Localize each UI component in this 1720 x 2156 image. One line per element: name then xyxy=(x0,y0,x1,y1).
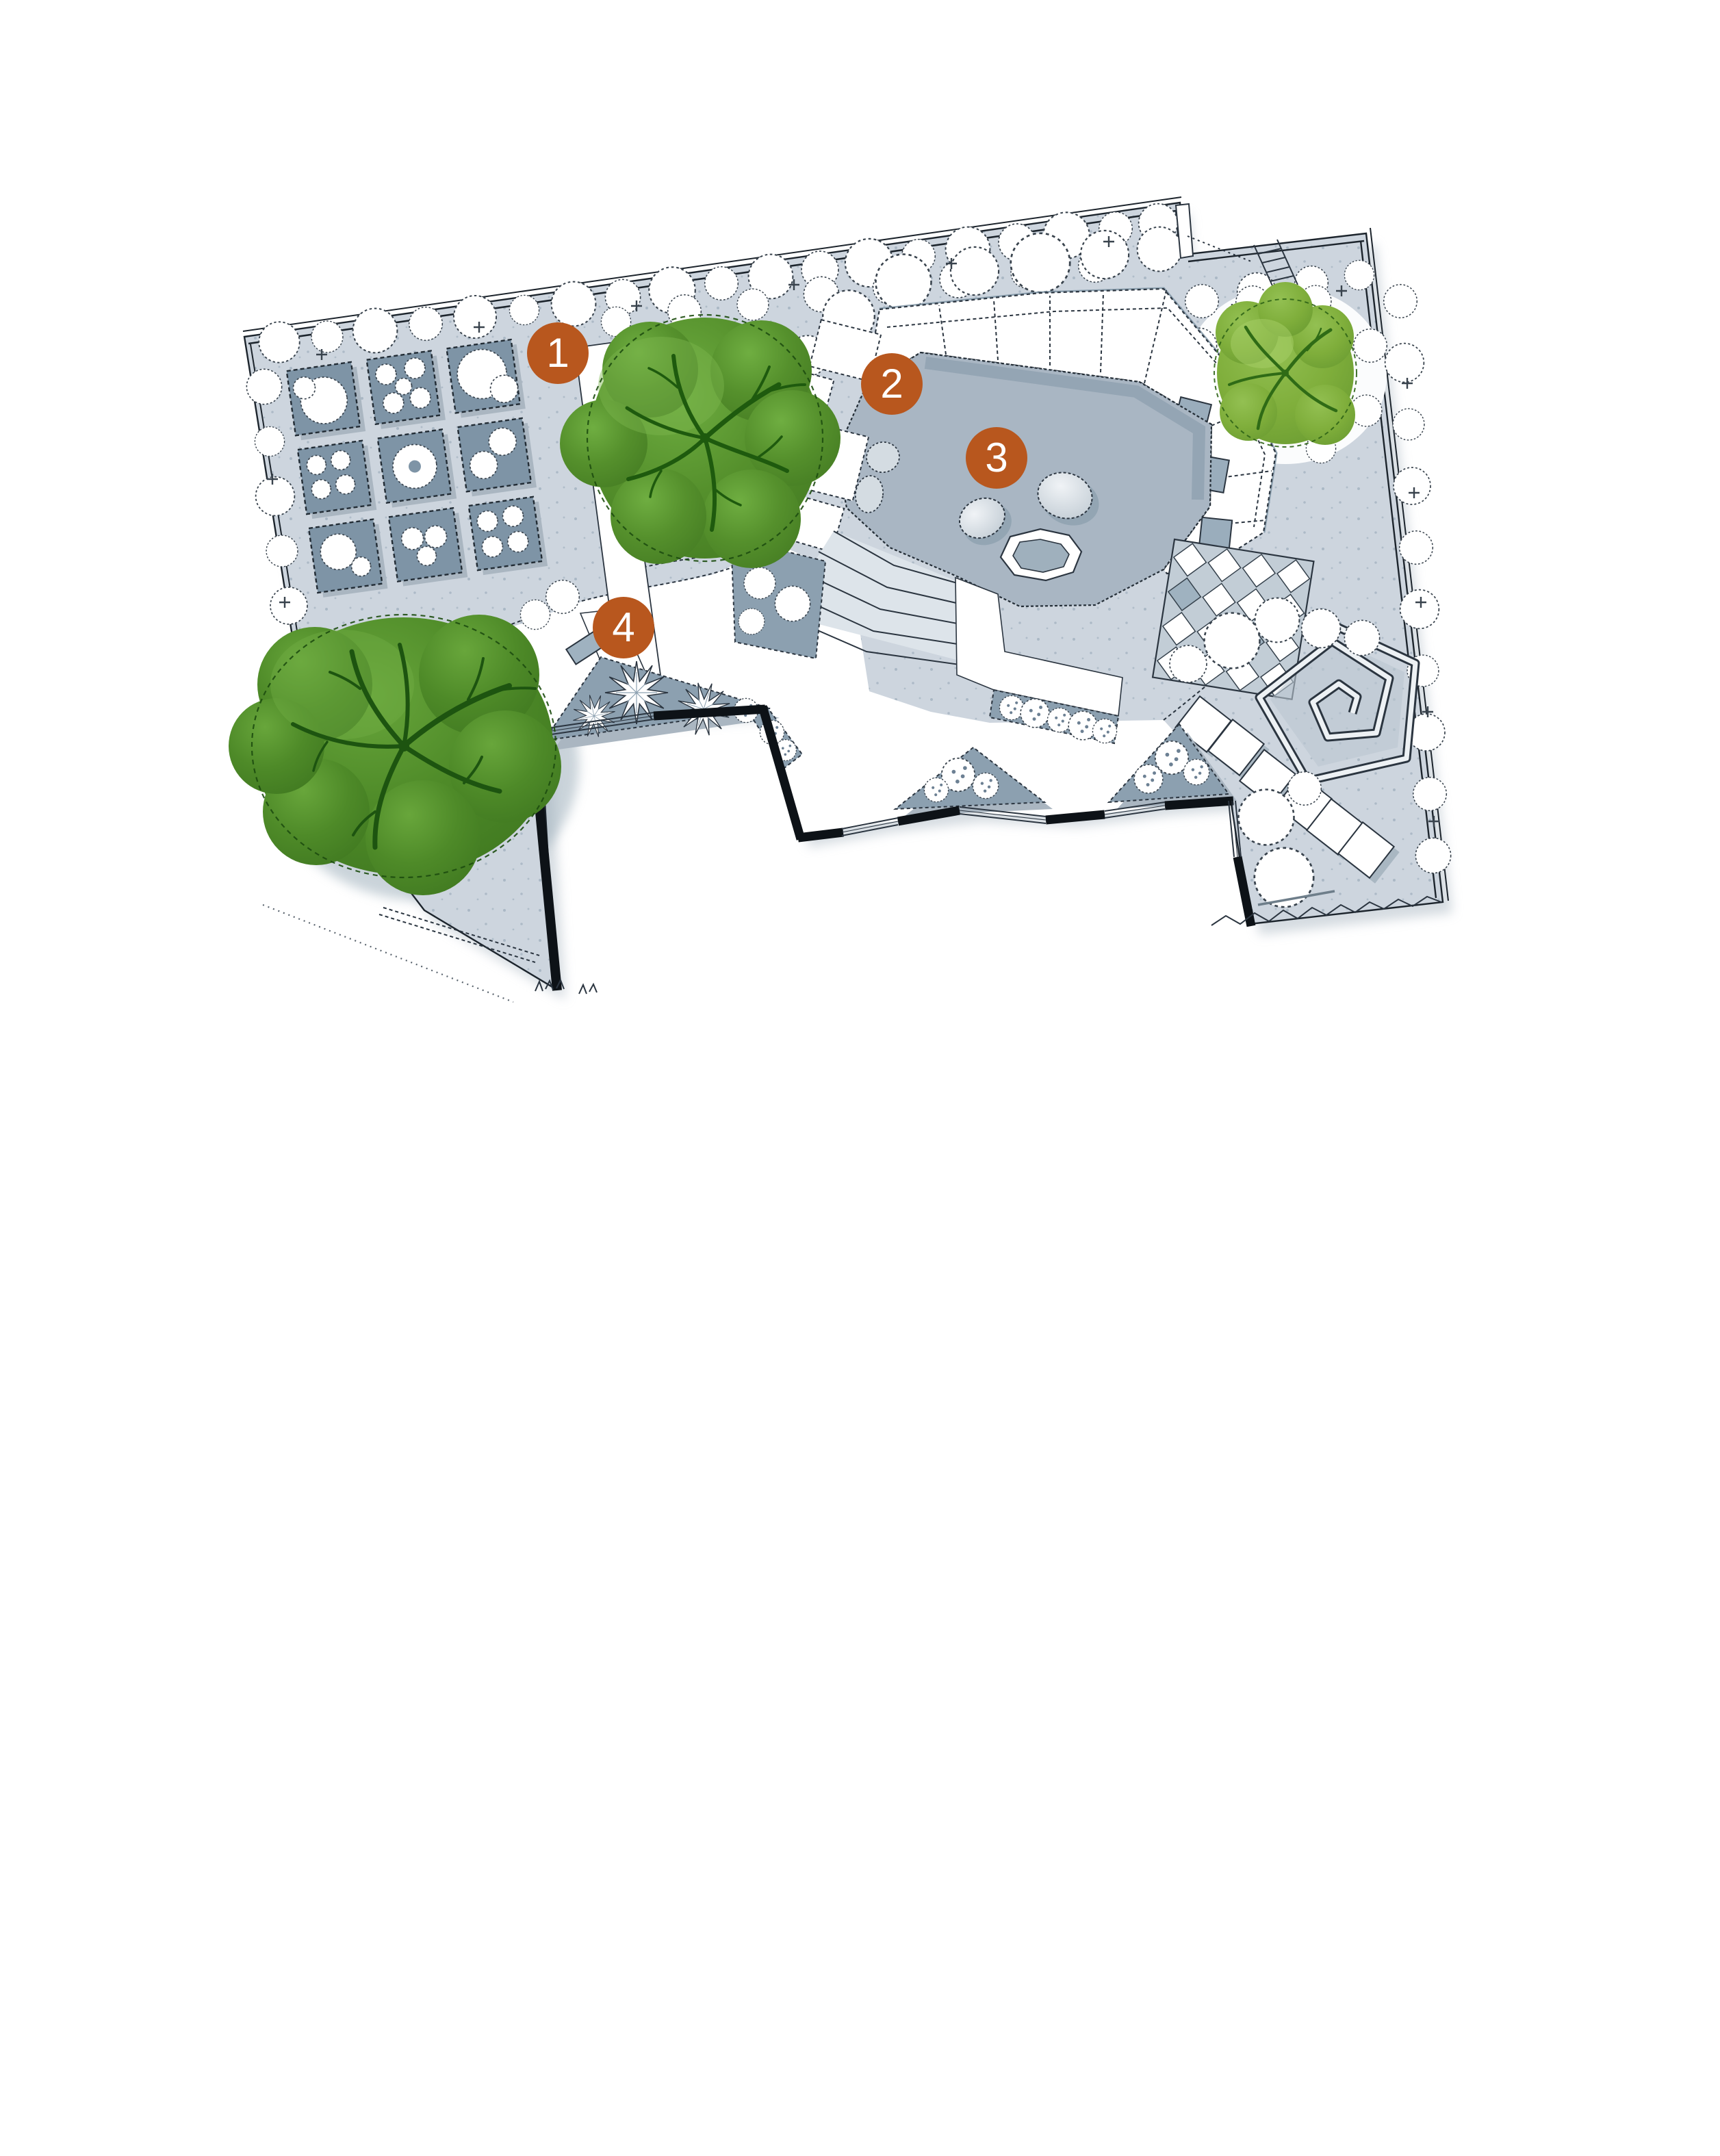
grass-tuft xyxy=(579,984,597,994)
callout-marker-2-label: 2 xyxy=(880,363,903,405)
stone-bowl xyxy=(1001,529,1081,580)
document-page: 1 2 3 4 xyxy=(0,0,1720,2156)
callout-marker-4: 4 xyxy=(593,597,654,658)
callout-marker-1-label: 1 xyxy=(546,333,569,374)
callout-marker-3: 3 xyxy=(966,427,1027,489)
callout-marker-1: 1 xyxy=(527,322,589,384)
callout-marker-3-label: 3 xyxy=(985,437,1007,478)
parterre-grid xyxy=(287,339,548,598)
callout-marker-4-label: 4 xyxy=(612,607,634,648)
callout-marker-2: 2 xyxy=(861,353,923,415)
garden-plan-illustration xyxy=(0,0,1720,1164)
